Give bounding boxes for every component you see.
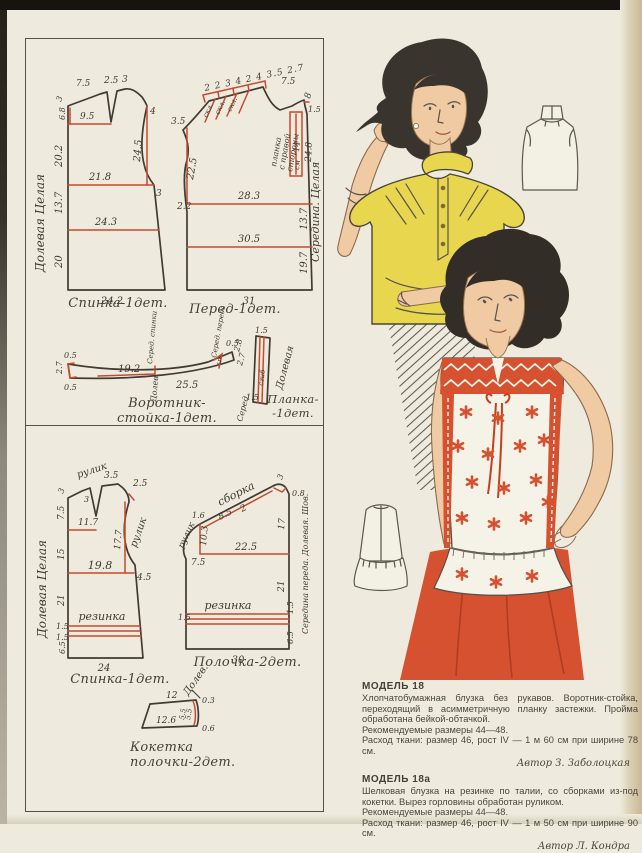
pattern-front18-diagram: 2 2 3 4 2 4 3.5 2.7 7.5 скл. скл. скл. 3… [163,72,321,324]
elastic-label: резинка [204,599,251,612]
measurement: 1.5 [308,105,321,114]
measurement: 28.3 [237,191,260,202]
measurement: 1.5 [56,622,69,631]
measurement: 4 [149,107,156,117]
grain-label: Середина. Целая [309,162,322,262]
measurement: 17 [277,518,288,531]
pattern-collar-diagram: 0.5 2.7 0.5 19.2 Серед. спинки Долев. 25… [56,322,246,406]
model18-fabric: Расход ткани: размер 46, рост IV — 1 м 6… [362,735,638,756]
measurement: 11.7 [78,518,98,528]
measurement: 12.6 [156,716,176,726]
grain-label: Середина переда. Долевая. Шов. [301,494,310,634]
caption-front18: Перед-1дет. [175,302,295,317]
caption-yoke-line1: Кокетка [130,740,260,755]
measurement: 2.5 [132,479,148,489]
measurement: 10.3 [199,525,211,546]
model18a-sizes: Рекомендуемые размеры 44—48. [362,807,638,818]
caption-yoke-line2: полочки-2дет. [130,755,260,770]
measurement: 3.5 [171,117,186,127]
caption-yoke: Кокетка полочки-2дет. [130,740,260,770]
caption-placket: Планка- -1дет. [262,392,324,420]
scan-edge-left [0,10,7,824]
measurement: 7.5 [57,505,67,520]
scan-edge-top [0,0,642,10]
gather-label: сборка [215,479,256,509]
measurement: 1.5 [178,613,191,622]
measurement: 13.7 [54,191,65,214]
rouleau-label: рулик [177,520,198,550]
measurement: 6.5 [58,641,67,654]
measurement: 1.5 [255,326,268,335]
pattern-front18a-diagram: 1.6 сборка 8.5 2 3 0.8 рулик 10.3 17 22.… [158,464,320,674]
yoke-red-edge [193,701,195,725]
measurement: 7.5 [191,558,206,568]
measurement: 3 [54,95,64,103]
model18a-description: Шелковая блузка на резинке по талии, со … [362,786,638,807]
measurement: 21 [57,595,67,607]
pattern-back18-diagram: 7.5 2.5 3 3 6.8 9.5 20.2 24.5 4 21.8 3 1… [28,72,173,322]
model18-title: МОДЕЛЬ 18 [362,681,638,692]
center-label: Серед. [235,393,251,423]
measurement: 25.5 [175,380,198,391]
measurement: 15 [57,548,67,560]
measurement: 21.8 [88,172,111,183]
caption-placket-line2: -1дет. [262,406,324,420]
neck [486,336,510,358]
measurement: 3 [122,75,128,85]
measurement: 22.5 [234,542,257,553]
measurement: 20 [54,255,65,269]
measurement: 7.5 [76,79,91,89]
measurement: 14 [292,141,302,152]
measurement: 1.6 [192,511,205,520]
front-pattern-outline [183,87,312,290]
model18-back-sketch [512,100,590,200]
caption-placket-line1: Планка- [262,392,324,406]
measurement: 20.2 [54,145,65,168]
fold-label: сгиб [257,368,267,386]
measurement: 0.6 [202,724,215,733]
measurement: 7.5 [281,77,296,87]
measurement: 2.2 [176,202,192,212]
caption-back18: Спинка-1дет. [58,296,178,311]
model18-sizes: Рекомендуемые размеры 44—48. [362,725,638,736]
magazine-page: { "colors": { "paper": "#eeebde", "ink":… [0,0,642,824]
measurement: 3 [275,473,285,481]
measurement: 0.3 [202,696,215,705]
model18a-author: Автор Л. Кондра [362,841,630,852]
model-descriptions: МОДЕЛЬ 18 Хлопчатобумажная блузка без ру… [362,676,638,853]
measurement: 19.8 [88,559,113,572]
collar-red-lines [68,354,222,378]
measurement: 0.5 [64,383,77,392]
model18a-fabric: Расход ткани: размер 46, рост IV — 1 м 5… [362,818,638,839]
measurement: 24.5 [132,139,145,163]
measurement: 24.3 [94,217,117,228]
model18-author: Автор З. Заболоцкая [362,758,630,769]
measurement: 4.5 [136,573,152,583]
elastic-label: резинка [78,610,125,623]
pleat-label: скл. [226,96,240,113]
measurement: 6.5 [286,631,295,644]
measurement: 24.8 [304,141,315,163]
earring [413,123,418,128]
model18-description: Хлопчатобумажная блузка без рукавов. Вор… [362,693,638,725]
model18a-title: МОДЕЛЬ 18а [362,774,638,785]
measurement: 19.2 [118,364,140,375]
measurement: 5.5 [184,707,194,720]
sketch-peplum [354,558,407,591]
measurement: 9.5 [80,112,95,122]
measurement: 3 [84,495,89,504]
measurement: 1.5 [56,633,69,642]
measurement: 12 [166,691,178,701]
measurement: 3.5 [104,471,119,481]
model18a-back-sketch [348,498,416,594]
measurement: 17.7 [113,529,125,550]
pleat-label: скл. [202,102,216,119]
measurement: 1.5 [286,601,295,614]
measurement: 3 [56,487,66,495]
grain-label: Долевая Целая [33,174,47,273]
caption-back18a: Спинка-1дет. [60,672,180,687]
measurement: 6.8 [58,107,67,120]
measurement: 5 [217,357,222,366]
rouleau-label: рулик [128,516,149,549]
grain-label: Долевая Целая [35,540,49,639]
pattern-back18a-diagram: рулик 3 3 3.5 2.5 7.5 11.7 15 17.7 рулик… [30,458,175,686]
measurement: 2.5 [103,76,119,86]
pleat-label: скл. [214,99,228,116]
measurement: 30.5 [238,234,260,245]
measurement: 3 [156,189,162,199]
sketch-body [522,119,578,190]
stand-collar [422,152,472,174]
measurement: 2.7 [55,360,64,375]
placket-label: см [293,160,302,171]
measurement: 8 [303,91,314,99]
measurement: 8.5 [217,507,235,523]
measurement: 21 [277,581,287,593]
caption-collar: Воротник-стойка-1дет. [82,396,252,426]
grain-label: Долевая [274,345,296,392]
illustration-model18a-figure [346,226,642,682]
measurement: 0.5 [64,351,77,360]
